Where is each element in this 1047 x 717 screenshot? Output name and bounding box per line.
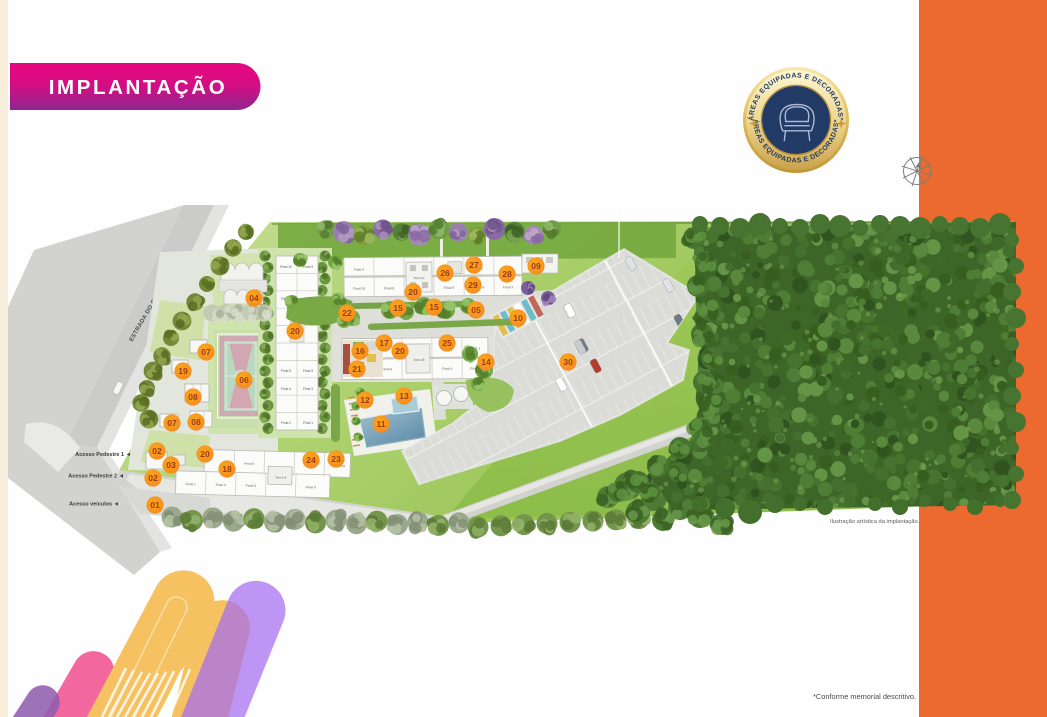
svg-text:07: 07 [201, 347, 211, 357]
svg-text:Final 10: Final 10 [353, 287, 365, 291]
svg-text:Torre D: Torre D [413, 276, 425, 280]
svg-text:10: 10 [513, 313, 523, 323]
svg-text:Final 8: Final 8 [384, 286, 394, 290]
svg-text:12: 12 [360, 395, 370, 405]
svg-text:02: 02 [152, 446, 162, 456]
svg-text:Final 2: Final 2 [503, 285, 513, 289]
svg-text:Torre A: Torre A [275, 475, 287, 479]
svg-text:05: 05 [471, 305, 481, 315]
svg-text:Final 4: Final 4 [281, 387, 291, 391]
svg-text:20: 20 [408, 287, 418, 297]
svg-text:19: 19 [178, 366, 188, 376]
svg-text:02: 02 [148, 473, 158, 483]
svg-text:Final 5: Final 5 [303, 369, 313, 373]
svg-text:29: 29 [468, 280, 478, 290]
svg-text:22: 22 [342, 308, 352, 318]
svg-text:09: 09 [531, 261, 541, 271]
svg-text:Final 1: Final 1 [186, 482, 196, 486]
svg-text:08: 08 [188, 392, 198, 402]
svg-text:04: 04 [249, 293, 259, 303]
svg-text:Final 6: Final 6 [444, 286, 454, 290]
svg-text:28: 28 [502, 269, 512, 279]
svg-text:Final 9: Final 9 [303, 265, 313, 269]
svg-text:Final 4: Final 4 [442, 367, 452, 371]
svg-text:24: 24 [306, 455, 316, 465]
svg-text:08: 08 [191, 417, 201, 427]
svg-text:20: 20 [395, 346, 405, 356]
svg-text:Acesso Pedestre 1 ◄: Acesso Pedestre 1 ◄ [75, 452, 131, 458]
svg-text:16: 16 [355, 346, 365, 356]
svg-text:30: 30 [563, 357, 573, 367]
svg-text:Final 6: Final 6 [281, 369, 291, 373]
svg-text:Final 9: Final 9 [306, 485, 316, 489]
svg-text:18: 18 [222, 464, 232, 474]
svg-text:Acesso veículos ◄: Acesso veículos ◄ [69, 502, 119, 508]
svg-text:13: 13 [399, 391, 409, 401]
svg-text:27: 27 [469, 260, 479, 270]
svg-text:11: 11 [376, 419, 385, 429]
svg-text:20: 20 [290, 326, 300, 336]
svg-text:25: 25 [442, 338, 452, 348]
svg-text:15: 15 [393, 303, 403, 313]
svg-text:Final 6: Final 6 [244, 462, 254, 466]
svg-text:07: 07 [167, 418, 177, 428]
svg-text:Acesso Pedestre 2 ◄: Acesso Pedestre 2 ◄ [68, 474, 124, 480]
svg-text:Final 6: Final 6 [382, 367, 392, 371]
svg-text:Final 2: Final 2 [281, 421, 291, 425]
svg-text:17: 17 [379, 338, 389, 348]
svg-text:03: 03 [166, 460, 176, 470]
svg-text:Final 1: Final 1 [303, 421, 313, 425]
svg-text:15: 15 [429, 302, 439, 312]
svg-text:Final 2: Final 2 [216, 483, 226, 487]
svg-text:01: 01 [150, 500, 160, 510]
svg-text:Ilustração artística da implan: Ilustração artística da implantação. [830, 519, 920, 525]
svg-text:20: 20 [200, 449, 210, 459]
svg-text:23: 23 [331, 454, 341, 464]
svg-text:Final 9: Final 9 [354, 268, 364, 272]
svg-text:*Conforme memorial descritivo.: *Conforme memorial descritivo. [813, 692, 916, 701]
svg-text:IMPLANTAÇÃO: IMPLANTAÇÃO [49, 76, 228, 99]
svg-text:26: 26 [440, 268, 450, 278]
svg-text:Final 8: Final 8 [246, 484, 256, 488]
svg-text:21: 21 [352, 364, 362, 374]
svg-text:Final 10: Final 10 [280, 265, 292, 269]
svg-text:06: 06 [239, 375, 249, 385]
svg-text:14: 14 [481, 357, 491, 367]
svg-text:Final 3: Final 3 [303, 387, 313, 391]
svg-text:Torre B: Torre B [413, 358, 425, 362]
